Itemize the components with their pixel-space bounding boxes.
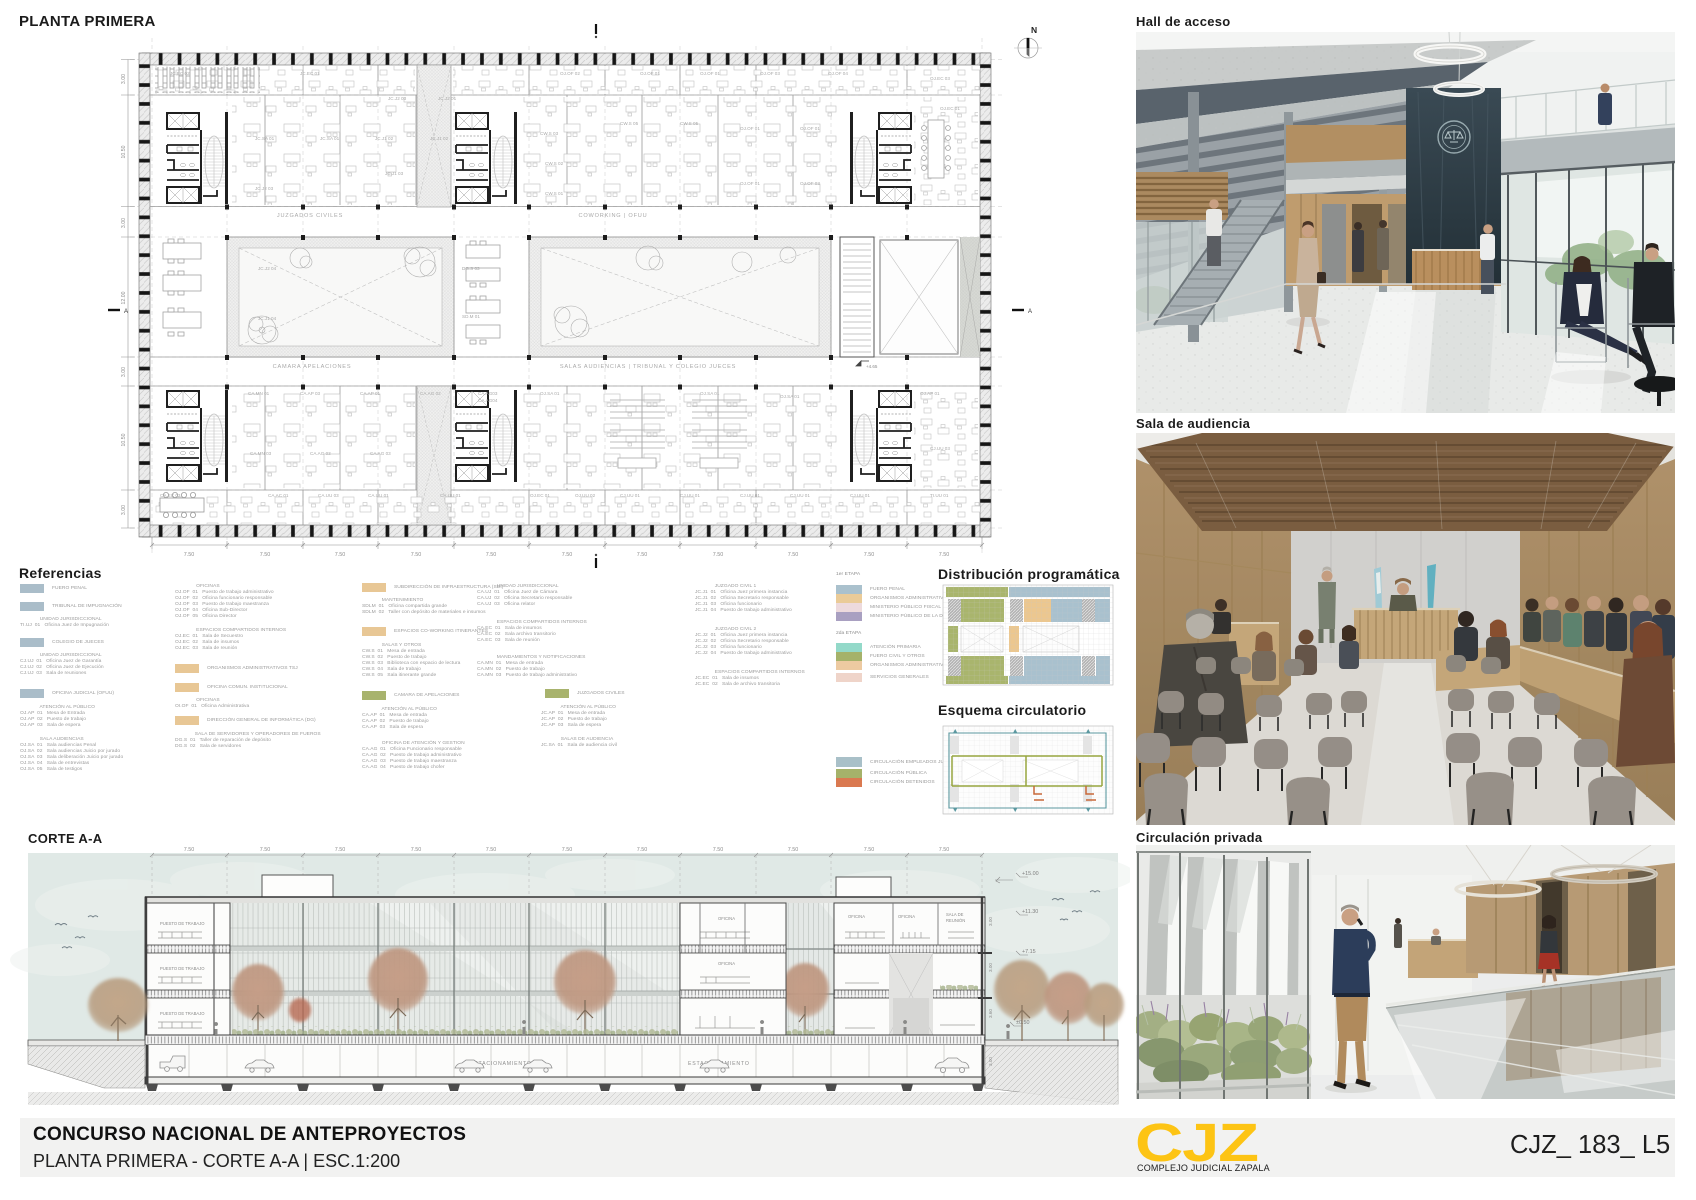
- svg-text:+7.15: +7.15: [1022, 949, 1036, 955]
- svg-text:OFICINA: OFICINA: [848, 914, 865, 919]
- svg-text:CW.S 02: CW.S 02: [545, 161, 564, 166]
- svg-text:7.50: 7.50: [788, 847, 799, 853]
- svg-text:OJ.OF 03: OJ.OF 03: [800, 181, 820, 186]
- svg-text:PUESTO DE TRABAJO: PUESTO DE TRABAJO: [160, 921, 205, 926]
- svg-text:OJ.EC 01: OJ.EC 01: [530, 493, 550, 498]
- svg-text:COWORKING | OFUU: COWORKING | OFUU: [579, 213, 648, 219]
- svg-text:TI.UU 01: TI.UU 01: [930, 493, 949, 498]
- svg-text:REUNIÓN: REUNIÓN: [946, 918, 965, 923]
- svg-text:CA.AG 02: CA.AG 02: [420, 391, 441, 396]
- svg-text:DG.S 03: DG.S 03: [462, 266, 480, 271]
- svg-text:SD.M 01: SD.M 01: [462, 314, 480, 319]
- svg-text:CA.AG 03: CA.AG 03: [370, 451, 391, 456]
- svg-text:JC.EC 01: JC.EC 01: [300, 71, 320, 76]
- svg-text:7.50: 7.50: [864, 552, 875, 558]
- svg-text:7.50: 7.50: [335, 552, 346, 558]
- svg-text:OJ.OF 03: OJ.OF 03: [760, 71, 780, 76]
- svg-text:PUESTO DE TRABAJO: PUESTO DE TRABAJO: [160, 966, 205, 971]
- svg-text:JC.J1 02: JC.J1 02: [430, 136, 449, 141]
- svg-text:CW.S 05: CW.S 05: [620, 121, 639, 126]
- svg-text:CW.S 05: CW.S 05: [680, 121, 699, 126]
- svg-text:7.50: 7.50: [411, 847, 422, 853]
- svg-text:JC.EC 02: JC.EC 02: [170, 71, 190, 76]
- svg-text:OJ.OF 01: OJ.OF 01: [640, 71, 660, 76]
- svg-text:7.50: 7.50: [713, 552, 724, 558]
- svg-text:7.50: 7.50: [260, 552, 271, 558]
- svg-text:3.00: 3.00: [121, 367, 127, 377]
- svg-text:CA.AG04: CA.AG04: [478, 398, 498, 403]
- svg-text:10.50: 10.50: [121, 145, 127, 158]
- svg-text:±0.50: ±0.50: [1016, 1020, 1029, 1026]
- svg-text:+4.65: +4.65: [866, 364, 878, 369]
- svg-text:JUZGADOS CIVILES: JUZGADOS CIVILES: [277, 213, 343, 219]
- svg-text:CA.UU 01: CA.UU 01: [440, 493, 461, 498]
- svg-text:A: A: [1028, 309, 1032, 315]
- svg-text:3.00: 3.00: [121, 505, 127, 515]
- svg-text:3.00: 3.00: [121, 218, 127, 228]
- svg-text:7.50: 7.50: [637, 552, 648, 558]
- svg-text:+15.00: +15.00: [1022, 871, 1039, 877]
- svg-text:CA.UU 01: CA.UU 01: [368, 493, 389, 498]
- svg-text:JC.J1 03: JC.J1 03: [385, 171, 404, 176]
- svg-text:OJ.SA 01: OJ.SA 01: [540, 391, 560, 396]
- svg-text:JC.J2 03: JC.J2 03: [388, 96, 407, 101]
- svg-text:7.50: 7.50: [184, 552, 195, 558]
- svg-text:OJ.OF 04: OJ.OF 04: [828, 71, 848, 76]
- svg-text:JC.J1 02: JC.J1 02: [375, 136, 394, 141]
- svg-text:CJ.UU 01: CJ.UU 01: [680, 493, 700, 498]
- svg-text:SALA DE: SALA DE: [946, 912, 964, 917]
- svg-text:7.50: 7.50: [637, 847, 648, 853]
- svg-text:7.50: 7.50: [260, 847, 271, 853]
- svg-text:CA.EC 03: CA.EC 03: [160, 493, 181, 498]
- svg-text:7.50: 7.50: [184, 847, 195, 853]
- svg-text:CJ.UU 03: CJ.UU 03: [930, 446, 950, 451]
- svg-text:3.60: 3.60: [988, 1009, 993, 1018]
- svg-text:CA.MN 01: CA.MN 01: [248, 391, 270, 396]
- svg-text:10.50: 10.50: [121, 433, 127, 446]
- svg-text:7.50: 7.50: [486, 847, 497, 853]
- svg-text:OJ.OF 01: OJ.OF 01: [700, 71, 720, 76]
- svg-text:7.50: 7.50: [939, 552, 950, 558]
- svg-text:CJ.UU 01: CJ.UU 01: [850, 493, 870, 498]
- svg-text:CA.AP 03: CA.AP 03: [300, 391, 321, 396]
- svg-text:CA.UU 03: CA.UU 03: [318, 493, 339, 498]
- svg-text:OFICINA: OFICINA: [718, 961, 735, 966]
- svg-text:CA.AG03: CA.AG03: [478, 391, 498, 396]
- svg-text:7.50: 7.50: [562, 847, 573, 853]
- svg-text:PUESTO DE TRABAJO: PUESTO DE TRABAJO: [160, 1011, 205, 1016]
- svg-text:OJ.AP 01: OJ.AP 01: [920, 391, 940, 396]
- svg-text:SALAS AUDIENCIAS | TRIBUNAL Y: SALAS AUDIENCIAS | TRIBUNAL Y COLEGIO JU…: [560, 364, 736, 370]
- svg-text:CA.AG 03: CA.AG 03: [310, 451, 331, 456]
- svg-text:JC.SA 01: JC.SA 01: [255, 136, 275, 141]
- svg-text:7.50: 7.50: [562, 552, 573, 558]
- svg-text:7.50: 7.50: [411, 552, 422, 558]
- svg-text:N: N: [1031, 25, 1037, 35]
- svg-text:A: A: [124, 309, 128, 315]
- svg-text:CW.S 03: CW.S 03: [540, 131, 559, 136]
- svg-text:OJ.OF 01: OJ.OF 01: [740, 126, 760, 131]
- svg-text:7.50: 7.50: [713, 847, 724, 853]
- svg-text:CAMARA APELACIONES: CAMARA APELACIONES: [273, 364, 352, 370]
- svg-text:7.50: 7.50: [864, 847, 875, 853]
- svg-text:JC.SA 01: JC.SA 01: [320, 136, 340, 141]
- svg-text:3.00: 3.00: [121, 74, 127, 84]
- svg-text:CJ.UU 01: CJ.UU 01: [740, 493, 760, 498]
- svg-text:OFICINA: OFICINA: [718, 916, 735, 921]
- svg-text:12.00: 12.00: [121, 291, 127, 304]
- svg-text:OJ.UU 02: OJ.UU 02: [575, 493, 596, 498]
- svg-text:CW.S 01: CW.S 01: [545, 191, 564, 196]
- svg-text:7.50: 7.50: [486, 552, 497, 558]
- svg-text:OJ.OF 01: OJ.OF 01: [800, 126, 820, 131]
- svg-text:OJ.SA 01: OJ.SA 01: [700, 391, 720, 396]
- svg-text:+11.30: +11.30: [1022, 909, 1038, 915]
- svg-text:3.00: 3.00: [988, 917, 993, 926]
- svg-text:CA.MN 03: CA.MN 03: [250, 451, 272, 456]
- svg-text:JC.J1 04: JC.J1 04: [258, 316, 277, 321]
- svg-text:7.50: 7.50: [335, 847, 346, 853]
- svg-text:OJ.EC 01: OJ.EC 01: [940, 106, 960, 111]
- svg-text:OJ.OF 01: OJ.OF 01: [740, 181, 760, 186]
- svg-text:7.50: 7.50: [939, 847, 950, 853]
- svg-text:JC.J2 03: JC.J2 03: [255, 186, 274, 191]
- svg-text:CJ.UU 01: CJ.UU 01: [620, 493, 640, 498]
- svg-text:CA.AC 01: CA.AC 01: [268, 493, 289, 498]
- svg-text:OFICINA: OFICINA: [898, 914, 915, 919]
- svg-text:CA.AP 01: CA.AP 01: [360, 391, 381, 396]
- svg-text:OJ.OF 02: OJ.OF 02: [560, 71, 580, 76]
- svg-text:JC.J2 01: JC.J2 01: [438, 96, 457, 101]
- svg-text:7.50: 7.50: [788, 552, 799, 558]
- svg-text:3.00: 3.00: [988, 963, 993, 972]
- svg-text:CJ.UU 01: CJ.UU 01: [790, 493, 810, 498]
- svg-text:JC.J2 04: JC.J2 04: [258, 266, 277, 271]
- svg-text:OJ.EC 03: OJ.EC 03: [930, 76, 950, 81]
- svg-text:OJ.SA 01: OJ.SA 01: [780, 394, 800, 399]
- svg-text:3.00: 3.00: [988, 1057, 993, 1066]
